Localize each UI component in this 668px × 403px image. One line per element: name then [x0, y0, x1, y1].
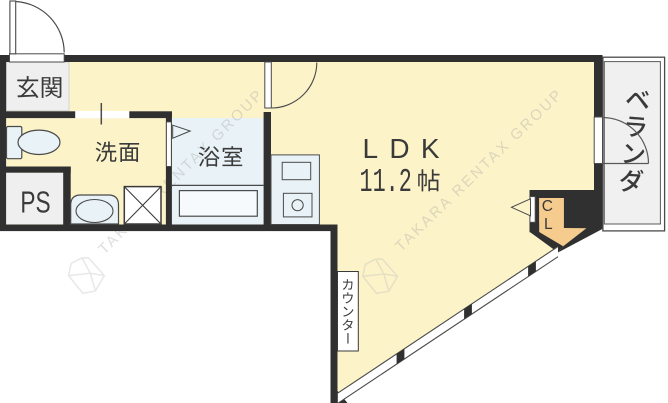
- svg-text:L: L: [544, 216, 553, 233]
- svg-text:C: C: [542, 198, 553, 215]
- svg-text:LDK: LDK: [363, 133, 451, 164]
- svg-text:PS: PS: [20, 184, 50, 219]
- svg-text:11.2: 11.2: [360, 164, 412, 202]
